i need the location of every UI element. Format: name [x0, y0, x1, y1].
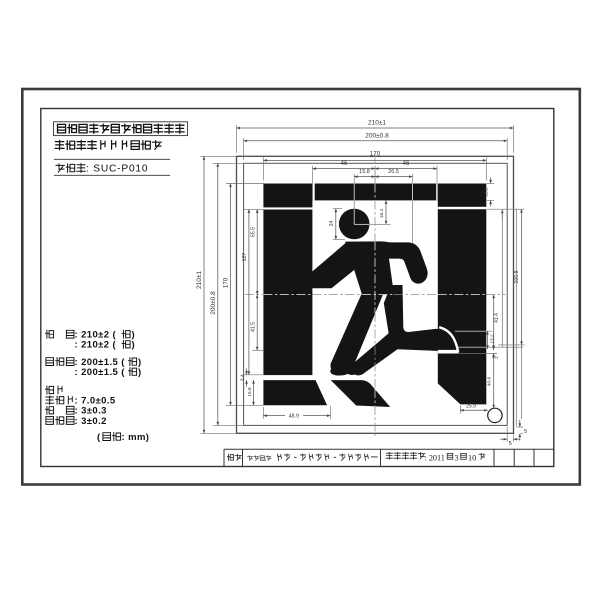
- svg-text:46: 46: [341, 161, 348, 167]
- svg-text:41.4: 41.4: [494, 313, 500, 323]
- svg-text:: 200±1.5 (: : 200±1.5 (: [75, 367, 126, 378]
- svg-text:: mm): : mm): [122, 432, 150, 443]
- svg-text:46: 46: [403, 161, 410, 167]
- svg-text:26.5: 26.5: [388, 169, 399, 175]
- svg-text:5: 5: [509, 441, 512, 447]
- svg-text:65.5: 65.5: [250, 227, 256, 237]
- svg-text:16.4: 16.4: [379, 209, 385, 219]
- svg-text:13.2: 13.2: [489, 334, 495, 344]
- svg-text:13.2: 13.2: [484, 187, 490, 197]
- svg-text:170: 170: [370, 150, 381, 157]
- svg-text:41.5: 41.5: [250, 322, 256, 332]
- svg-text:200±0.8: 200±0.8: [365, 132, 389, 139]
- svg-text:48.9: 48.9: [289, 414, 299, 420]
- svg-text:2: 2: [494, 356, 500, 359]
- svg-text:: 3±0.2: : 3±0.2: [75, 416, 107, 427]
- svg-text:15.8: 15.8: [247, 387, 253, 397]
- svg-text:25.9: 25.9: [466, 403, 476, 409]
- svg-text:210±1: 210±1: [368, 120, 386, 127]
- svg-text:15.8: 15.8: [359, 169, 370, 175]
- svg-text:24: 24: [329, 221, 335, 227]
- svg-text:200±0.8: 200±0.8: [210, 291, 217, 315]
- svg-text:127: 127: [242, 253, 248, 262]
- svg-text:210±1: 210±1: [196, 271, 203, 289]
- svg-text:: 210±2 (: : 210±2 (: [75, 340, 117, 351]
- svg-text:40.6: 40.6: [486, 377, 492, 387]
- svg-text:10: 10: [468, 453, 476, 462]
- svg-text:100.8: 100.8: [514, 270, 520, 283]
- svg-text:3: 3: [455, 453, 459, 462]
- svg-text:: 2011: : 2011: [425, 453, 445, 462]
- svg-text:3.4: 3.4: [240, 374, 246, 381]
- svg-text:): ): [132, 340, 135, 351]
- svg-text:): ): [138, 367, 141, 378]
- svg-text:5: 5: [524, 429, 527, 435]
- svg-text:170: 170: [223, 277, 230, 288]
- svg-text:: SUC-P010: : SUC-P010: [86, 164, 148, 175]
